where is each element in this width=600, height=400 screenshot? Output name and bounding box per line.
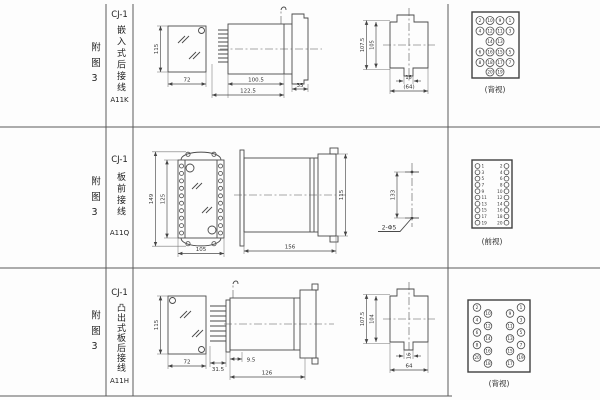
row3-view-label: (背视): [489, 378, 510, 388]
terminal-number: 17: [497, 60, 503, 65]
dim-row3-panel-width: 64: [406, 364, 413, 370]
terminal-number: 13: [482, 201, 488, 206]
terminal-number: 18: [487, 60, 493, 65]
terminal-number: 9: [499, 18, 502, 23]
row3-model-label: CJ-1: [106, 288, 133, 298]
terminal-number: 2: [479, 18, 482, 23]
dim-row1-panel-width: (64): [403, 85, 414, 91]
terminal-number: 3: [509, 29, 512, 34]
dim-row2-inner-height: 125: [161, 193, 167, 204]
row1-mount-label: 嵌入式后接线: [114, 25, 127, 94]
glass-hatch-marks: [180, 311, 203, 337]
row3-mount-label: 凸出式板后接线: [114, 303, 127, 373]
terminal-number: 10: [485, 311, 491, 316]
terminal-screw-columns: [180, 164, 223, 235]
dim-row1-height: 115: [154, 43, 160, 54]
row3-panel-cutout: 107.5 104 16 64: [360, 282, 435, 373]
dim-row1-panel-inner: 105: [370, 40, 376, 50]
dim-row3-height: 115: [154, 319, 160, 330]
screw-circle: [199, 347, 205, 353]
dim-row1-width: 72: [184, 78, 191, 84]
terminal-number: 7: [482, 183, 485, 188]
dim-row1-body-length: 100.5: [248, 78, 264, 84]
glass-hatch-marks: [178, 36, 200, 59]
screw-circle: [170, 298, 176, 304]
terminal-number: 1: [520, 305, 523, 310]
terminal-number: 17: [482, 214, 488, 219]
terminal-number: 20: [487, 70, 493, 75]
terminal-number: 12: [487, 29, 493, 34]
terminal-number: 8: [476, 342, 479, 347]
terminal-number: 16: [497, 208, 503, 213]
terminal-number: 12: [485, 323, 491, 328]
dim-row1-panel-outer: 107.5: [360, 38, 366, 52]
terminal-number: 5: [482, 176, 485, 181]
dim-row2-socket-height: 115: [339, 189, 345, 200]
terminal-number: 15: [482, 208, 488, 213]
terminal-number: 6: [500, 176, 503, 181]
dim-row3-pin-length: 31.5: [212, 367, 225, 373]
terminal-number: 4: [476, 317, 479, 322]
dim-row2-total-length: 156: [285, 245, 296, 251]
dim-row1-slot: 16: [405, 75, 411, 81]
terminal-number: 2: [476, 305, 479, 310]
terminal-number: 6: [476, 330, 479, 335]
row2-code-label: A11Q: [106, 229, 133, 237]
terminal-number: 12: [497, 195, 503, 200]
terminal-pins: [218, 30, 228, 62]
row2-mount-label: 板前接线: [114, 172, 127, 218]
dim-row2-outer-height: 149: [149, 193, 155, 204]
dim-row2-hole-span: 133: [391, 189, 397, 200]
row3-front-view: 115 72: [154, 296, 206, 369]
screw-circle: [199, 28, 205, 34]
row1-code-label: A11K: [106, 96, 133, 104]
terminal-number: 20: [474, 355, 480, 360]
terminal-number: 20: [497, 220, 503, 225]
dim-row1-total-length: 122.5: [240, 89, 256, 95]
dim-row2-width: 105: [196, 247, 207, 253]
terminal-number: 8: [500, 183, 503, 188]
terminal-number: 17: [507, 361, 513, 366]
terminal-number: 5: [520, 330, 523, 335]
terminal-number: 1: [482, 164, 485, 169]
terminal-number: 10: [487, 18, 493, 23]
row3-terminal-rear-view: 2 4 6 8 20 10 12 14 16 18 9 11 13 15 17 …: [468, 300, 530, 388]
terminal-number: 15: [497, 50, 503, 55]
terminal-number: 11: [497, 29, 503, 34]
mounting-board: [240, 150, 244, 246]
terminal-number: 13: [507, 336, 513, 341]
row1-fig-label: 附图3: [87, 42, 101, 90]
terminal-number: 5: [509, 50, 512, 55]
cover-screw: [208, 226, 216, 234]
dim-row3-body-length: 126: [262, 371, 273, 377]
terminal-number: 9: [509, 311, 512, 316]
terminal-number: 19: [518, 355, 524, 360]
dim-row3-offset: 9.5: [247, 358, 256, 364]
glass-hatch-marks: [192, 183, 212, 213]
cover-screw: [186, 164, 194, 172]
terminal-number: 15: [507, 348, 513, 353]
terminal-number: 10: [497, 189, 503, 194]
drill-hole: [411, 171, 414, 174]
terminal-number: 6: [479, 50, 482, 55]
terminal-number: 13: [497, 39, 503, 44]
row2-front-view: 149 125 105: [149, 152, 224, 257]
terminal-number: 14: [497, 201, 503, 206]
dim-row3-panel-inner: 104: [370, 314, 376, 324]
terminal-number: 11: [507, 323, 513, 328]
row2-model-label: CJ-1: [106, 155, 133, 165]
row2-view-label: (前视): [482, 236, 503, 246]
terminal-number: 16: [485, 348, 491, 353]
row3-code-label: A11H: [106, 377, 133, 385]
mounting-ears: [181, 152, 221, 246]
mounting-board: [226, 300, 230, 352]
terminal-pins: [210, 306, 226, 341]
row1-panel-cutout: 107.5 105 16 (64): [360, 8, 435, 94]
row2-drilling-plan: 133 2-Φ5: [378, 163, 419, 232]
terminal-number: 1: [509, 18, 512, 23]
row2-fig-label: 附图3: [87, 176, 101, 224]
row1-side-view: 100.5 122.5 35: [212, 7, 322, 98]
terminal-number: 4: [479, 29, 482, 34]
row3-fig-label: 附图3: [87, 310, 101, 358]
row1-terminal-rear-view: 2 10 9 1 4 12 11 3 14 13 6 16 15 5 8 18 …: [472, 12, 519, 94]
dim-row2-hole-spec: 2-Φ5: [382, 225, 397, 232]
terminal-number: 3: [482, 170, 485, 175]
relay-mounting-figure-page: 115 72 100.5 122.5 35 107.5 105: [0, 0, 600, 400]
dim-row3-panel-outer: 107.5: [360, 312, 366, 326]
terminal-number: 8: [479, 60, 482, 65]
terminal-number: 18: [497, 214, 503, 219]
terminal-number: 11: [482, 195, 488, 200]
row3-side-view: 9.5 31.5 126: [210, 281, 334, 380]
row1-front-view: 115 72: [154, 26, 206, 87]
row2-side-view: 156 115: [234, 148, 348, 254]
terminal-number: 4: [500, 170, 503, 175]
row2-terminal-front-view: 1 3 5 7 9 11 13 15 17 19 2 4 6 8 10 12 1…: [472, 160, 512, 246]
terminal-number: 19: [497, 70, 503, 75]
row1-view-label: (背视): [485, 84, 506, 94]
terminal-number: 14: [485, 336, 491, 341]
dim-row3-width: 72: [184, 360, 191, 366]
terminal-number: 3: [520, 317, 523, 322]
terminal-number: 14: [487, 39, 493, 44]
row1-model-label: CJ-1: [106, 10, 133, 20]
dim-row1-flange: 35: [297, 83, 304, 89]
terminal-number: 18: [485, 361, 491, 366]
terminal-number: 19: [482, 220, 488, 225]
terminal-number: 16: [487, 50, 493, 55]
dim-row3-slot: 16: [407, 353, 413, 359]
drill-hole: [411, 217, 414, 220]
terminal-number: 9: [482, 189, 485, 194]
terminal-number: 2: [500, 164, 503, 169]
terminal-number: 7: [509, 60, 512, 65]
terminal-number: 7: [520, 342, 523, 347]
